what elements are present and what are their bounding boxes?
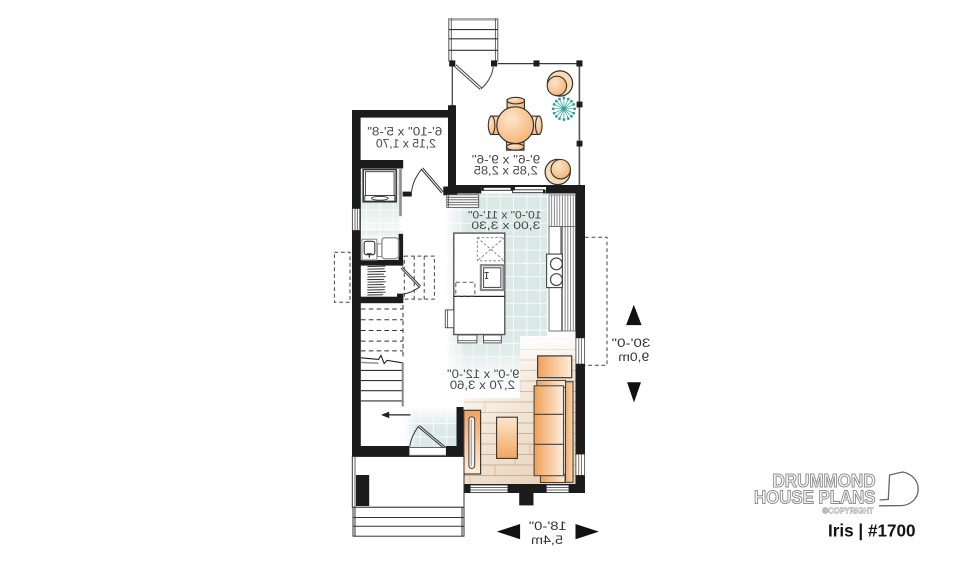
svg-text:9,0m: 9,0m (618, 352, 649, 364)
svg-text:6'-10" x 5'-8": 6'-10" x 5'-8" (367, 126, 442, 138)
svg-text:5,4m: 5,4m (531, 535, 563, 547)
svg-text:2,70 x 3,60: 2,70 x 3,60 (450, 380, 515, 392)
svg-text:18'-0": 18'-0" (529, 521, 567, 533)
svg-text:HOUSE PLANS: HOUSE PLANS (754, 486, 876, 507)
svg-text:2,85 x 2,85: 2,85 x 2,85 (474, 166, 538, 178)
svg-text:2,15 x 1,70: 2,15 x 1,70 (376, 138, 436, 150)
svg-text:3,00 x 3,30: 3,00 x 3,30 (471, 220, 540, 232)
svg-text:©COPYRIGHT: ©COPYRIGHT (823, 506, 874, 515)
svg-text:30'-0": 30'-0" (612, 338, 651, 350)
svg-text:Iris | #1700: Iris | #1700 (828, 520, 916, 540)
